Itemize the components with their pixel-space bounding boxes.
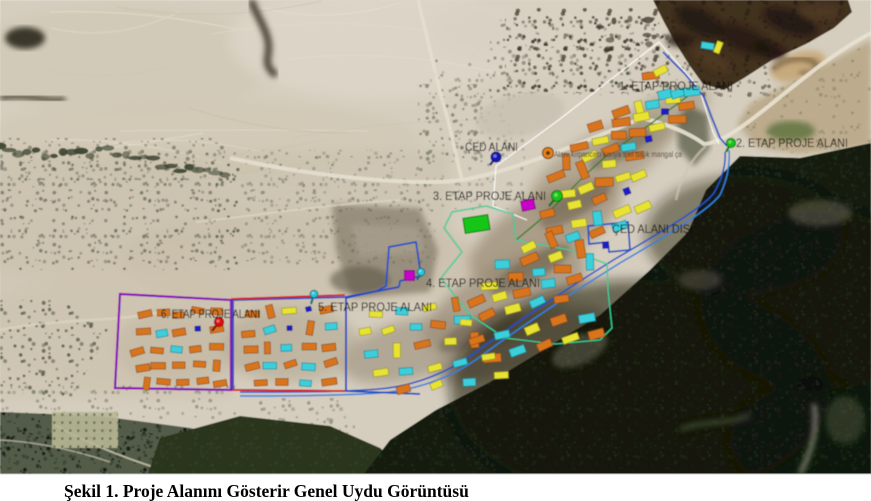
- svg-text:1. ETAP PROJE ALANI: 1. ETAP PROJE ALANI: [619, 81, 733, 93]
- svg-text:6. ETAP PROJE ALANI: 6. ETAP PROJE ALANI: [161, 307, 260, 321]
- svg-text:2. ETAP PROJE ALANI: 2. ETAP PROJE ALANI: [736, 138, 848, 150]
- svg-text:3. ETAP PROJE ALANI: 3. ETAP PROJE ALANI: [433, 191, 546, 203]
- svg-text:5. ETAP PROJE ALANI: 5. ETAP PROJE ALANI: [318, 302, 432, 314]
- svg-text:ÇED ALANI DIŞI: ÇED ALANI DIŞI: [612, 224, 693, 236]
- svg-text:Alanı kırpancacı konya tüel ba: Alanı kırpancacı konya tüel balık mangal…: [554, 150, 682, 159]
- svg-text:4. ETAP PROJE ALANI: 4. ETAP PROJE ALANI: [426, 278, 540, 290]
- svg-text:ÇED ALANI: ÇED ALANI: [465, 142, 518, 154]
